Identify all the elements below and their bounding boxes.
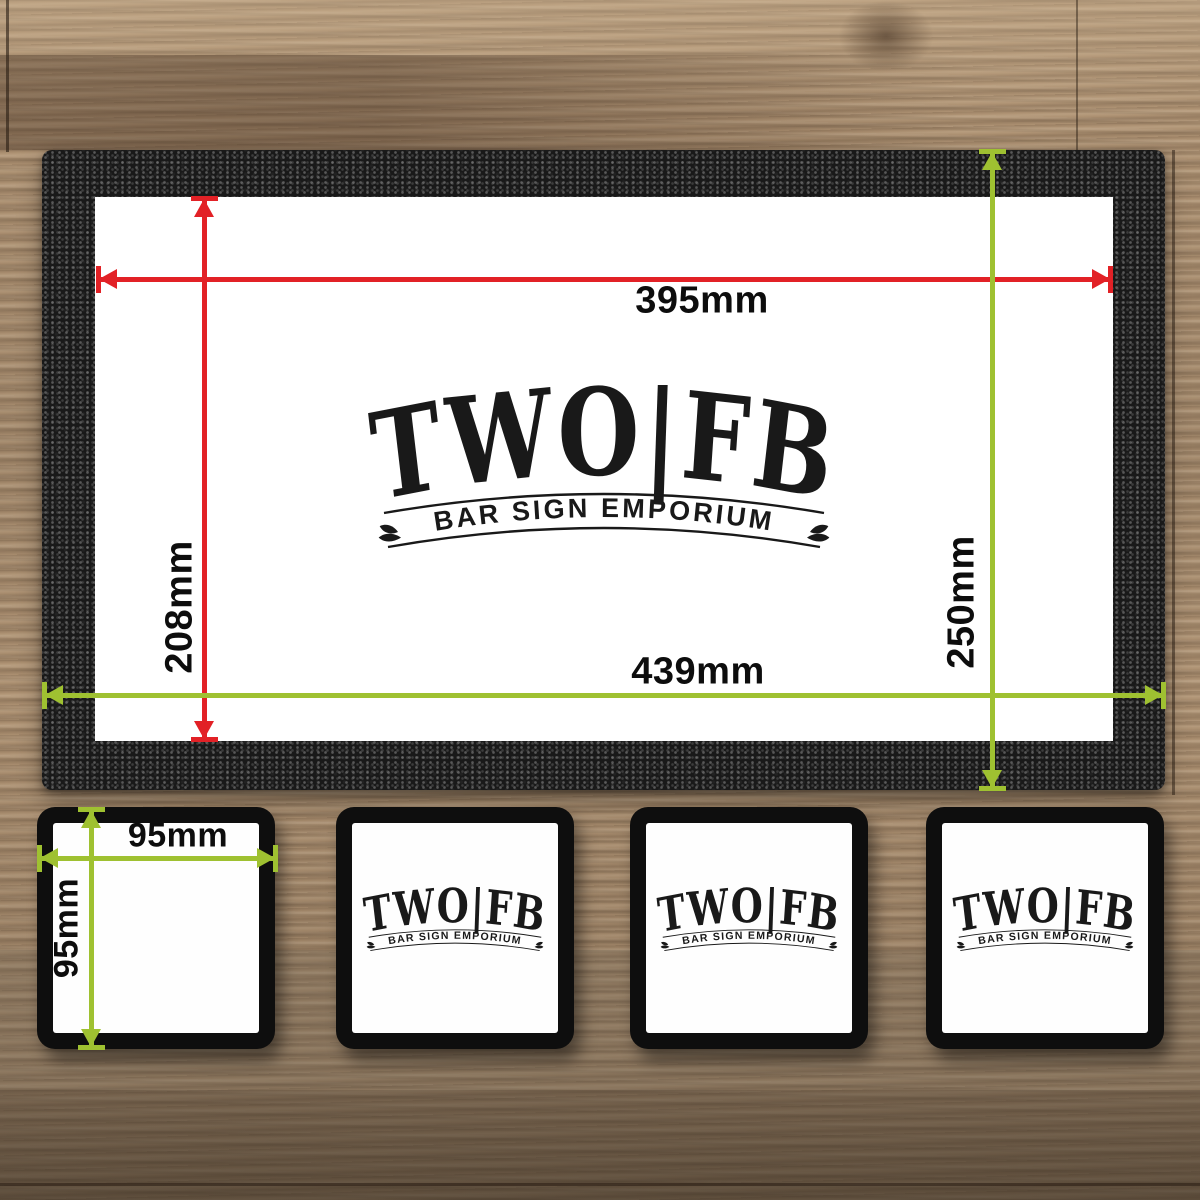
twofb-logo: TWO|FB BAR SIGN EMPORIUM [947,887,1143,953]
end-cap [191,737,218,742]
twofb-logo: TWO|FB BAR SIGN EMPORIUM [651,887,847,953]
overall-width-label: 439mm [631,651,764,694]
coaster-print-area: TWO|FB BAR SIGN EMPORIUM [942,823,1148,1033]
coaster-height-label: 95mm [48,878,87,978]
plank-seam [1172,150,1175,795]
arrowhead-up-icon [982,152,1002,170]
wood-knot [838,0,934,72]
end-cap [78,1045,105,1050]
product-scene: TWO|FB BAR SIGN EMPORIUM [0,0,1200,1200]
arrowhead-left-icon [40,848,58,868]
plank-seam [1076,0,1078,152]
coaster-print-area: TWO|FB BAR SIGN EMPORIUM [646,823,852,1033]
end-cap [273,845,278,872]
coaster-logo: TWO|FB BAR SIGN EMPORIUM [630,807,868,1049]
twofb-logo: TWO|FB BAR SIGN EMPORIUM [357,887,553,953]
print-width-dimension-line [97,277,1112,282]
arrowhead-up-icon [81,810,101,828]
coaster-width-label: 95mm [128,817,228,856]
coaster-print-area: TWO|FB BAR SIGN EMPORIUM [352,823,558,1033]
twofb-logo: TWO|FB BAR SIGN EMPORIUM [354,385,854,553]
coaster-logo: TWO|FB BAR SIGN EMPORIUM [336,807,574,1049]
coaster-logo: TWO|FB BAR SIGN EMPORIUM [926,807,1164,1049]
plank-seam [6,0,9,152]
print-height-dimension-line [202,197,207,741]
arrowhead-up-icon [194,199,214,217]
overall-height-dimension-line [990,150,995,790]
end-cap [1161,682,1166,709]
overall-height-label: 250mm [941,535,984,668]
print-height-label: 208mm [159,540,202,673]
coaster-width-dimension-line [38,856,277,861]
print-width-label: 395mm [635,280,768,323]
arrowhead-left-icon [99,269,117,289]
wood-grain-band [0,55,960,150]
overall-width-dimension-line [43,693,1165,698]
plank-seam [0,1183,1200,1186]
arrowhead-left-icon [45,685,63,705]
end-cap [1108,266,1113,293]
coaster-height-dimension-line [89,808,94,1049]
end-cap [979,786,1006,791]
